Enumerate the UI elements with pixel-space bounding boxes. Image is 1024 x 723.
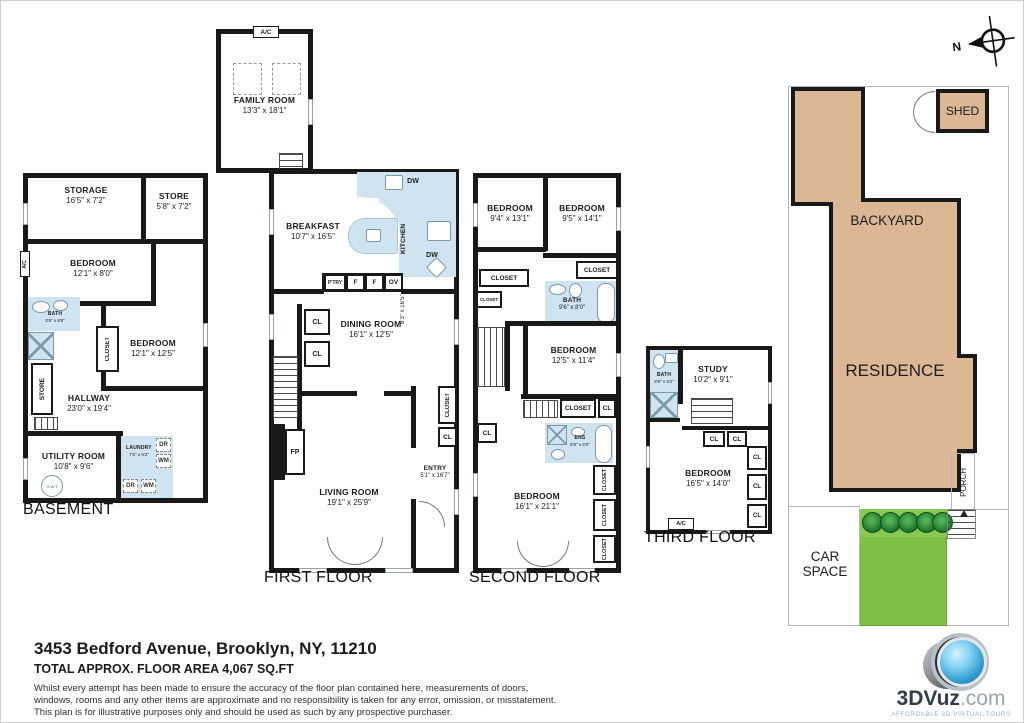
door-arc xyxy=(543,541,569,567)
ac-unit-family: A/C xyxy=(253,26,279,38)
wall xyxy=(401,289,456,294)
basement-room-storage: STORAGE 16'5" x 7'2" xyxy=(31,185,141,206)
toilet-icon xyxy=(551,449,565,460)
first-floor-title: FIRST FLOOR xyxy=(264,569,373,587)
room-family: FAMILY ROOM 13'3" x 18'1" xyxy=(222,95,307,116)
second-closet2: CLOSET xyxy=(476,291,502,308)
sink-icon xyxy=(665,353,678,363)
third-cl2: CL xyxy=(727,431,747,447)
residence-label: RESIDENCE xyxy=(831,361,959,381)
room-bedroom-2f-2: BEDROOM 9'5" x 14'1" xyxy=(545,203,619,224)
shed-label: SHED xyxy=(946,104,979,118)
sink-icon xyxy=(549,284,566,295)
window xyxy=(23,458,28,480)
first-closet-cl3: CL xyxy=(438,427,457,447)
wall xyxy=(650,418,680,422)
first-closet-cl2: CL xyxy=(304,341,330,367)
third-floor-title: THIRD FLOOR xyxy=(644,529,756,547)
window xyxy=(616,207,621,231)
door-arc xyxy=(517,541,543,567)
window xyxy=(768,382,772,404)
disclaimer-line: This plan is for illustrative purposes o… xyxy=(34,707,452,720)
wall xyxy=(523,326,528,399)
site-line xyxy=(789,506,859,507)
address: 3453 Bedford Avenue, Brooklyn, NY, 11210 xyxy=(34,639,377,659)
basement-room-bedroom1: BEDROOM 12'1" x 8'0" xyxy=(38,258,148,279)
window xyxy=(269,209,274,235)
room-bedroom-2f-3: BEDROOM 12'5" x 11'4" xyxy=(531,345,616,366)
door-arc xyxy=(327,537,355,565)
room-bedroom-2f-4: BEDROOM 16'1" x 21'1" xyxy=(491,491,583,512)
wall xyxy=(682,426,772,430)
bathtub-icon xyxy=(595,425,612,463)
dryer-icon: DR xyxy=(156,438,171,452)
room-bedroom-3f: BEDROOM 16'5" x 14'0" xyxy=(662,468,754,489)
washer-icon: WM xyxy=(156,454,171,468)
compass: N xyxy=(947,7,1021,78)
fridge: F xyxy=(347,275,364,290)
dryer-icon: DR xyxy=(123,479,138,493)
window xyxy=(308,99,313,125)
wall xyxy=(543,253,621,258)
third-cl3: CL xyxy=(747,446,767,470)
room-study: STUDY 10'2" x 9'1" xyxy=(682,364,744,385)
fireplace: FP xyxy=(285,429,305,475)
shower-icon xyxy=(547,425,567,445)
window xyxy=(646,446,650,468)
shower-icon xyxy=(28,332,54,360)
toilet-icon xyxy=(653,354,665,369)
wall xyxy=(411,386,416,448)
second-stairs xyxy=(477,327,505,387)
steps-arrow-icon xyxy=(960,510,968,517)
wall xyxy=(678,346,683,404)
second-closet5: CLOSET xyxy=(593,465,616,495)
basement-stairs xyxy=(34,417,58,430)
floor-area: TOTAL APPROX. FLOOR AREA 4,067 SQ.FT xyxy=(34,662,294,676)
porch: PORCH xyxy=(951,453,975,511)
logo-tagline: AFFORDABLE 3D VIRTUAL TOURS xyxy=(881,711,1021,718)
camera-lens-icon xyxy=(937,637,987,687)
porch-label: PORCH xyxy=(959,468,968,497)
family-room-plan: A/C FAMILY ROOM 13'3" x 18'1" xyxy=(216,29,313,173)
floorplan-canvas: N BATH 3'8" x 8'8" CLOSET STORE A/C xyxy=(0,0,1024,723)
door-arc xyxy=(419,501,445,527)
basement-title: BASEMENT xyxy=(23,501,113,519)
wall xyxy=(151,239,156,306)
window xyxy=(269,314,274,340)
washer-icon: WM xyxy=(141,479,156,493)
oven: OV xyxy=(385,275,402,290)
wall xyxy=(505,321,510,391)
window xyxy=(385,568,413,573)
window xyxy=(23,203,28,225)
second-floor-plan: BEDROOM 9'4" x 13'1" BEDROOM 9'5" x 14'1… xyxy=(473,173,621,573)
wall xyxy=(141,173,146,244)
second-cl2: CL xyxy=(477,423,497,443)
third-stairs xyxy=(691,398,733,424)
second-closet4: CLOSET xyxy=(560,399,596,418)
room-breakfast: BREAKFAST 10'7" x 16'5" xyxy=(273,221,353,242)
fireplace-chimney xyxy=(269,424,285,480)
ac-unit-basement: A/C xyxy=(20,251,30,277)
dw-label: DW xyxy=(403,175,423,188)
toilet-icon xyxy=(569,283,582,298)
wall xyxy=(411,499,416,573)
second-landing-steps xyxy=(523,400,558,418)
toilet-icon xyxy=(53,300,68,311)
second-closet7: CLOSET xyxy=(593,535,616,563)
window xyxy=(454,319,459,345)
wall xyxy=(101,386,208,391)
wall xyxy=(302,391,357,396)
backyard-label: BACKYARD xyxy=(839,213,935,228)
first-floor-plan: DW DW KITCHEN6'3" x 16'5" BREAKFAST 10'7… xyxy=(269,169,459,573)
second-cl1: CL xyxy=(598,399,616,418)
third-floor-plan: BATH 3'9" x 9'2" STUDY 10'2" x 9'1" CL C… xyxy=(646,346,772,534)
shower-icon xyxy=(650,392,678,418)
basement-closet: CLOSET xyxy=(96,326,119,372)
compass-north-label: N xyxy=(951,39,962,54)
room-dining: DINING ROOM 16'1" x 12'5" xyxy=(321,319,421,340)
site-line xyxy=(976,509,1009,510)
wall xyxy=(269,289,324,294)
window xyxy=(473,203,478,227)
second-floor-title: SECOND FLOOR xyxy=(469,569,601,587)
second-closet6: CLOSET xyxy=(593,499,616,531)
third-cl5: CL xyxy=(747,504,767,528)
door-arc xyxy=(355,537,383,565)
hot-water-tank-icon: H.W.T xyxy=(41,475,63,497)
third-cl4: CL xyxy=(747,474,767,500)
pantry: P'TRY xyxy=(325,275,345,290)
skylight xyxy=(233,63,262,95)
fridge: F xyxy=(366,275,383,290)
basement-plan: BATH 3'8" x 8'8" CLOSET STORE A/C STORAG… xyxy=(23,173,208,503)
basement-room-store-top: STORE 5'8" x 7'2" xyxy=(143,191,205,212)
wall xyxy=(384,391,413,396)
cooktop-icon xyxy=(366,229,381,242)
skylight xyxy=(272,63,301,95)
shed: SHED xyxy=(936,89,989,133)
bathtub-icon xyxy=(597,283,615,323)
wall xyxy=(216,29,313,173)
first-closet-cl1: CL xyxy=(304,309,330,335)
window xyxy=(454,489,459,515)
wall xyxy=(23,239,208,244)
compass-icon: N xyxy=(947,7,1021,78)
window xyxy=(616,353,621,377)
logo-wordmark: 3DVuz.com xyxy=(881,687,1021,711)
kitchen-sink-icon xyxy=(427,221,451,241)
basement-store-side: STORE xyxy=(31,363,53,415)
sink-icon xyxy=(571,427,585,437)
first-stairs xyxy=(273,356,298,418)
window xyxy=(203,323,208,347)
logo: 3DVuz.com AFFORDABLE 3D VIRTUAL TOURS xyxy=(881,627,1021,722)
second-closet1: CLOSET xyxy=(479,269,529,287)
basement-room-utility: UTILITY ROOM 10'8" x 9'6" xyxy=(31,451,116,472)
dishwasher-icon xyxy=(385,175,403,190)
wall xyxy=(543,173,548,251)
room-bedroom-2f-1: BEDROOM 9'4" x 13'1" xyxy=(474,203,546,224)
disclaimer-line: Whilst every attempt has been made to en… xyxy=(34,683,528,696)
sink-icon xyxy=(32,301,50,313)
third-cl1: CL xyxy=(703,431,725,447)
wall xyxy=(473,247,546,252)
first-closet: CLOSET xyxy=(438,386,457,424)
room-living: LIVING ROOM 19'1" x 25'9" xyxy=(299,487,399,508)
room-entry: ENTRY 5'1" x 16'7" xyxy=(413,465,457,481)
wall xyxy=(23,431,123,436)
window xyxy=(473,473,478,497)
second-closet3: CLOSET xyxy=(576,261,618,279)
car-space-label: CAR SPACE xyxy=(789,549,861,579)
disclaimer-line: windows, rooms and any other items are a… xyxy=(34,695,556,708)
